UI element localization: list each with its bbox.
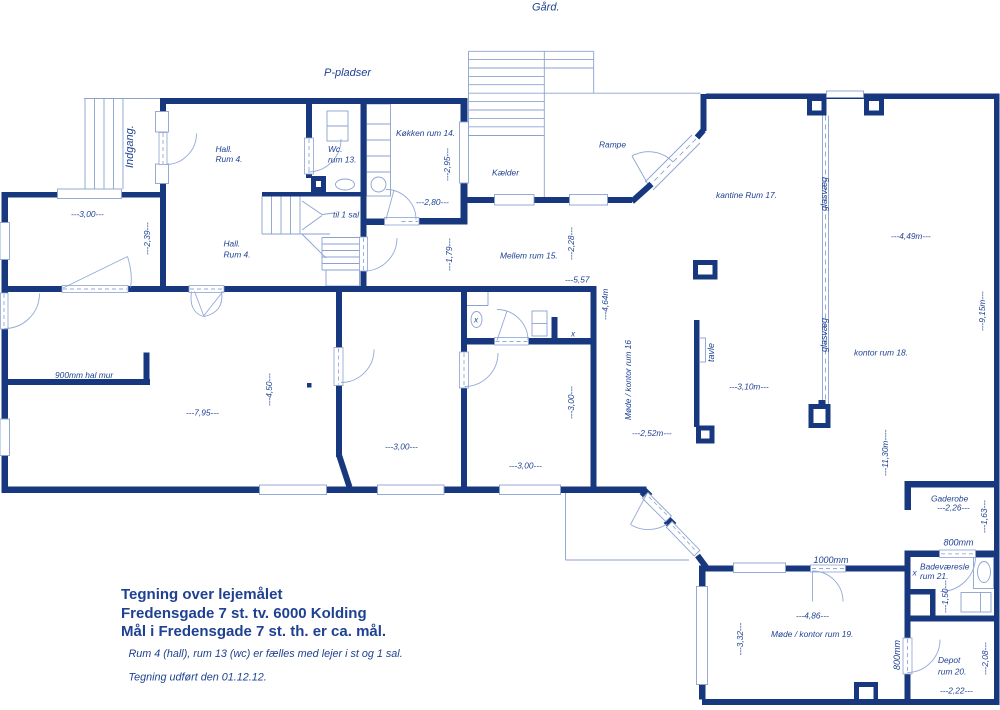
svg-text:tavle: tavle bbox=[706, 343, 716, 362]
svg-text:---9,15m---: ---9,15m--- bbox=[977, 291, 987, 331]
svg-text:---2,52m---: ---2,52m--- bbox=[632, 428, 672, 438]
svg-text:---2,39---: ---2,39--- bbox=[142, 222, 152, 255]
svg-text:---3,00---: ---3,00--- bbox=[509, 461, 542, 471]
svg-text:---4,86---: ---4,86--- bbox=[796, 611, 829, 621]
svg-text:Mål i Fredensgade 7 st. th. er: Mål i Fredensgade 7 st. th. er ca. mål. bbox=[121, 623, 386, 640]
svg-text:---2,08---: ---2,08--- bbox=[980, 642, 990, 675]
svg-text:---1,50---: ---1,50--- bbox=[940, 580, 950, 613]
svg-text:Wc.: Wc. bbox=[328, 144, 342, 154]
svg-text:---4,50---: ---4,50--- bbox=[264, 373, 274, 406]
svg-text:glasvæg: glasvæg bbox=[819, 177, 829, 211]
svg-text:Gård.: Gård. bbox=[532, 2, 560, 14]
svg-text:---11,30m----: ---11,30m---- bbox=[880, 429, 890, 476]
svg-text:800mm: 800mm bbox=[892, 639, 902, 670]
svg-text:---3,10m---: ---3,10m--- bbox=[729, 382, 769, 392]
svg-text:glasvæg: glasvæg bbox=[819, 318, 829, 352]
svg-text:rum 13.: rum 13. bbox=[328, 155, 356, 165]
svg-text:---1,63---: ---1,63--- bbox=[979, 500, 989, 533]
svg-text:Møde / kontor rum 16: Møde / kontor rum 16 bbox=[623, 340, 633, 420]
svg-text:rum 21.: rum 21. bbox=[920, 571, 948, 581]
svg-text:Tegning over lejemålet: Tegning over lejemålet bbox=[121, 586, 282, 603]
svg-text:P-pladser: P-pladser bbox=[324, 67, 372, 79]
svg-text:---4,49m---: ---4,49m--- bbox=[891, 231, 931, 241]
svg-text:x: x bbox=[912, 568, 918, 578]
svg-text:Køkken rum 14.: Køkken rum 14. bbox=[396, 128, 455, 138]
svg-text:Hall.: Hall. bbox=[224, 239, 241, 249]
svg-text:Kælder: Kælder bbox=[492, 168, 520, 178]
svg-text:---2,28---: ---2,28--- bbox=[566, 227, 576, 260]
svg-text:Rampe: Rampe bbox=[599, 140, 626, 150]
svg-text:---1,79---: ---1,79--- bbox=[444, 238, 454, 271]
svg-text:---3,00---: ---3,00--- bbox=[71, 209, 104, 219]
svg-text:Møde / kontor rum 19.: Møde / kontor rum 19. bbox=[771, 629, 853, 639]
svg-text:x: x bbox=[570, 329, 576, 339]
svg-text:Indgang.: Indgang. bbox=[124, 125, 136, 168]
svg-text:1000mm: 1000mm bbox=[814, 555, 850, 565]
svg-text:rum 20.: rum 20. bbox=[938, 667, 966, 677]
svg-text:Hall.: Hall. bbox=[216, 144, 233, 154]
svg-text:---5,57: ---5,57 bbox=[565, 275, 590, 285]
svg-text:til 1 sal: til 1 sal bbox=[333, 210, 360, 220]
svg-text:kontor rum 18.: kontor rum 18. bbox=[854, 348, 908, 358]
svg-text:Fredensgade 7 st. tv. 6000 Kol: Fredensgade 7 st. tv. 6000 Kolding bbox=[121, 605, 367, 622]
svg-text:---2,95---: ---2,95--- bbox=[442, 148, 452, 181]
svg-text:Tegning udført den 01.12.12.: Tegning udført den 01.12.12. bbox=[129, 672, 267, 684]
svg-text:---7,95---: ---7,95--- bbox=[186, 408, 219, 418]
svg-text:x: x bbox=[473, 315, 479, 325]
svg-text:Rum 4.: Rum 4. bbox=[216, 154, 243, 164]
svg-text:---3,32---: ---3,32--- bbox=[735, 623, 745, 656]
svg-text:kantine Rum 17.: kantine Rum 17. bbox=[716, 190, 777, 200]
svg-text:Rum 4 (hall), rum 13 (wc) er f: Rum 4 (hall), rum 13 (wc) er fælles med … bbox=[129, 648, 403, 660]
svg-text:---2,80---: ---2,80--- bbox=[416, 197, 449, 207]
svg-text:Rum 4.: Rum 4. bbox=[224, 250, 251, 260]
svg-text:---2,26---: ---2,26--- bbox=[937, 503, 970, 513]
svg-text:Mellem rum 15.: Mellem rum 15. bbox=[500, 251, 558, 261]
svg-text:---2,22---: ---2,22--- bbox=[940, 686, 973, 696]
svg-text:---3,00---: ---3,00--- bbox=[385, 442, 418, 452]
svg-text:---3,00---: ---3,00--- bbox=[566, 386, 576, 419]
svg-text:Depot: Depot bbox=[938, 655, 961, 665]
svg-text:---4,64m: ---4,64m bbox=[600, 289, 610, 320]
svg-text:800mm: 800mm bbox=[944, 537, 975, 547]
svg-text:Badeværesle: Badeværesle bbox=[920, 562, 970, 572]
svg-text:900mm hal mur: 900mm hal mur bbox=[55, 370, 114, 380]
